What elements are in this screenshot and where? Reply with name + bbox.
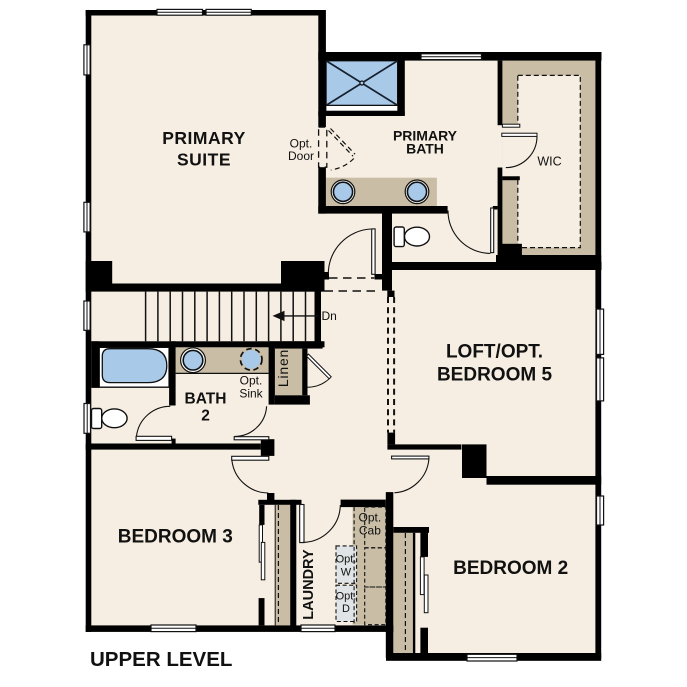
svg-text:Opt.: Opt.	[336, 554, 357, 566]
svg-text:LAUNDRY: LAUNDRY	[301, 549, 317, 620]
svg-text:SUITE: SUITE	[177, 150, 231, 170]
svg-text:BATH: BATH	[185, 391, 227, 408]
svg-text:BEDROOM 5: BEDROOM 5	[437, 365, 553, 386]
svg-text:PRIMARY: PRIMARY	[162, 128, 246, 148]
svg-text:D: D	[342, 603, 350, 615]
svg-text:Sink: Sink	[239, 387, 263, 401]
svg-text:2: 2	[201, 408, 210, 425]
svg-text:UPPER LEVEL: UPPER LEVEL	[90, 648, 232, 671]
svg-text:Linen: Linen	[275, 349, 291, 387]
svg-text:Opt.: Opt.	[336, 591, 357, 603]
svg-text:LOFT/OPT.: LOFT/OPT.	[446, 342, 543, 363]
svg-text:Opt.: Opt.	[240, 374, 263, 388]
svg-text:WIC: WIC	[537, 155, 561, 169]
svg-text:W: W	[341, 567, 352, 579]
svg-text:BEDROOM 3: BEDROOM 3	[118, 527, 233, 548]
svg-text:Dn: Dn	[322, 309, 337, 323]
svg-text:BEDROOM 2: BEDROOM 2	[453, 558, 568, 579]
svg-text:BATH: BATH	[406, 141, 444, 157]
svg-text:Door: Door	[288, 149, 314, 163]
svg-text:Cab: Cab	[359, 524, 381, 538]
svg-text:Opt.: Opt.	[359, 511, 382, 525]
